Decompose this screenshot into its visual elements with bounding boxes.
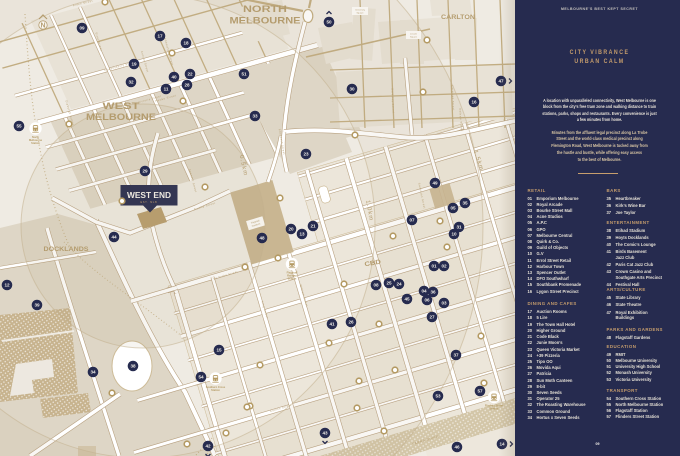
svg-text:46: 46 <box>454 445 460 450</box>
svg-text:50: 50 <box>326 20 332 25</box>
svg-text:Station: Station <box>490 406 499 410</box>
svg-text:51: 51 <box>241 72 247 77</box>
svg-text:05: 05 <box>450 206 456 211</box>
svg-text:MELBOURNE: MELBOURNE <box>86 112 156 122</box>
svg-text:27: 27 <box>429 315 435 320</box>
svg-text:19: 19 <box>131 62 137 67</box>
svg-text:54: 54 <box>198 375 204 380</box>
svg-text:30: 30 <box>349 87 355 92</box>
svg-text:37: 37 <box>453 353 459 358</box>
svg-text:09: 09 <box>79 26 85 31</box>
svg-text:31: 31 <box>456 225 462 230</box>
svg-text:38: 38 <box>130 364 136 369</box>
svg-text:21: 21 <box>310 224 316 229</box>
svg-text:18: 18 <box>183 41 189 46</box>
svg-text:20: 20 <box>288 227 294 232</box>
svg-text:57: 57 <box>477 389 483 394</box>
svg-text:12: 12 <box>4 283 10 288</box>
svg-text:35: 35 <box>462 201 468 206</box>
svg-text:22: 22 <box>187 72 193 77</box>
svg-text:26: 26 <box>348 320 354 325</box>
svg-text:Station: Station <box>211 388 220 392</box>
svg-text:Station: Station <box>31 141 40 145</box>
svg-text:28: 28 <box>184 83 190 88</box>
svg-text:11: 11 <box>164 87 169 92</box>
svg-text:13: 13 <box>299 232 305 237</box>
svg-text:23: 23 <box>303 152 309 157</box>
svg-text:06: 06 <box>424 298 430 303</box>
svg-text:55: 55 <box>16 124 22 129</box>
svg-text:43: 43 <box>322 431 328 436</box>
svg-text:48: 48 <box>259 236 265 241</box>
svg-text:08: 08 <box>373 283 379 288</box>
svg-text:44: 44 <box>111 235 117 240</box>
svg-text:07: 07 <box>409 218 415 223</box>
svg-text:29: 29 <box>142 169 148 174</box>
svg-text:36: 36 <box>430 290 436 295</box>
svg-text:MELBOURNE: MELBOURNE <box>230 16 301 26</box>
svg-text:10: 10 <box>451 232 457 237</box>
svg-text:33: 33 <box>252 114 258 119</box>
svg-text:49: 49 <box>432 181 438 186</box>
svg-text:25: 25 <box>386 281 392 286</box>
svg-text:WEST: WEST <box>103 101 141 111</box>
svg-text:24: 24 <box>396 282 402 287</box>
svg-text:CARLTON: CARLTON <box>441 14 475 21</box>
svg-text:03: 03 <box>441 301 447 306</box>
svg-text:15: 15 <box>216 348 222 353</box>
svg-text:34: 34 <box>90 370 96 375</box>
svg-text:NORTH: NORTH <box>243 4 287 14</box>
svg-text:N: N <box>40 23 45 30</box>
svg-text:53: 53 <box>435 394 441 399</box>
svg-text:39: 39 <box>34 303 40 308</box>
svg-text:02: 02 <box>441 264 447 269</box>
svg-text:04: 04 <box>421 289 427 294</box>
svg-text:16: 16 <box>471 100 477 105</box>
svg-text:41: 41 <box>329 322 335 327</box>
svg-text:42: 42 <box>205 444 211 449</box>
svg-text:40: 40 <box>171 75 177 80</box>
svg-text:01: 01 <box>431 264 437 269</box>
svg-text:45: 45 <box>404 297 410 302</box>
svg-text:DOCKLANDS: DOCKLANDS <box>44 246 90 253</box>
svg-text:32: 32 <box>128 80 134 85</box>
svg-text:Station: Station <box>288 277 297 281</box>
svg-text:17: 17 <box>157 34 163 39</box>
